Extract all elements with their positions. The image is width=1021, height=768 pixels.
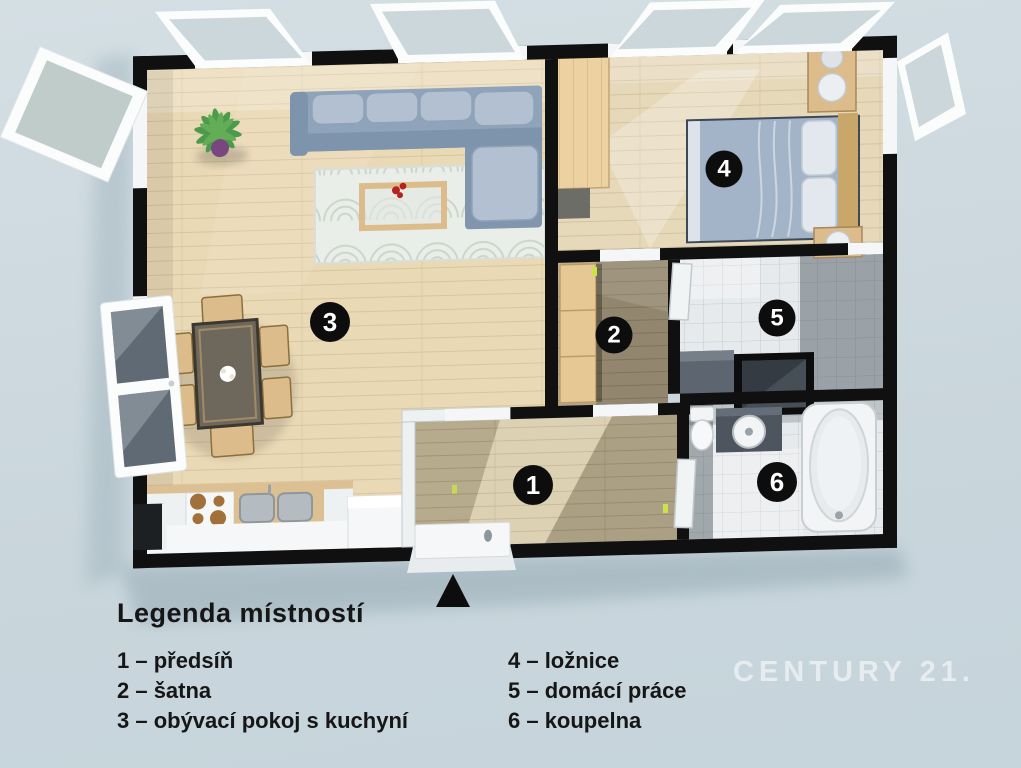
room-badge-5: 5 <box>759 300 796 337</box>
floorplan-group <box>0 0 966 584</box>
floor-plan-page: 1 2 3 4 5 6 Legenda místností 1 – předsí… <box>0 0 1021 768</box>
legend-item-1: 1 – předsíň <box>117 646 508 676</box>
century21-watermark: CENTURY 21. <box>733 656 975 689</box>
bathroom-sink <box>716 407 782 453</box>
room-badge-2: 2 <box>596 317 633 354</box>
room-badge-3: 3 <box>310 302 350 342</box>
utility-counter <box>680 350 734 399</box>
kitchen-sink <box>234 483 324 527</box>
stove <box>186 492 234 527</box>
legend-item-3: 3 – obývací pokoj s kuchyní <box>117 706 508 736</box>
legend-column-left: 1 – předsíň 2 – šatna 3 – obývací pokoj … <box>117 646 508 736</box>
legend-item-2: 2 – šatna <box>117 676 508 706</box>
window-sash <box>897 32 966 142</box>
legend-item-6: 6 – koupelna <box>508 706 899 736</box>
left-wall-recess <box>133 503 167 550</box>
window-sash <box>100 295 187 478</box>
coffee-table <box>362 182 444 229</box>
room-badge-6: 6 <box>757 462 797 502</box>
bathtub <box>802 402 876 532</box>
washer-box <box>734 352 814 416</box>
room-badge-4: 4 <box>706 151 743 188</box>
room-badge-1: 1 <box>513 465 553 505</box>
entrance-door <box>407 522 516 573</box>
toilet <box>690 407 714 451</box>
legend-title: Legenda místností <box>117 598 899 629</box>
